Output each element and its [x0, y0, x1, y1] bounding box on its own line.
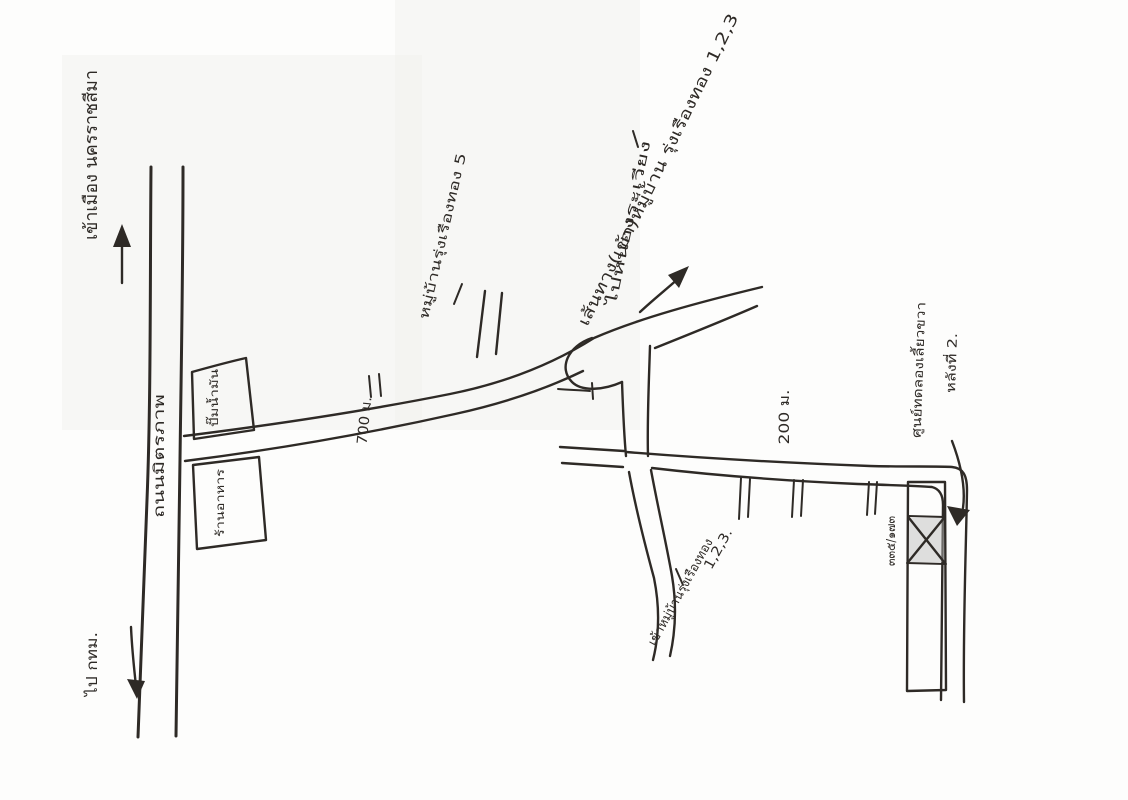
- label-house-number: ๓๓๕/๑๗๓: [883, 516, 898, 566]
- label-distance-200m: 200 ม.: [777, 390, 793, 445]
- label-to-bangkok: ไป กทม.: [83, 632, 101, 697]
- road-200m-south-edge: [652, 468, 943, 700]
- label-building-south: ร้านอาหาร: [213, 469, 227, 537]
- label-destination-line2: หลังที่ 2.: [942, 333, 961, 394]
- label-to-city: เข้าเมือง นครราชสีมา: [81, 70, 102, 240]
- destination-block: [907, 482, 946, 691]
- label-destination-line1: ศูนย์ทดลองเลี้ยวขวา: [907, 302, 930, 439]
- connector-east-edge: [648, 346, 650, 456]
- arrow-to-bangkok-shaft: [131, 627, 136, 686]
- driveway-stub: [739, 478, 741, 519]
- road-200m-west-stub-south: [562, 463, 623, 467]
- label-main-road: ถนนมิตรภาพ: [152, 394, 168, 518]
- label-building-north: ปั๊มน้ำมัน: [205, 369, 221, 427]
- destination-block-divider: [907, 563, 946, 564]
- driveway-stub: [748, 479, 750, 517]
- arrow-to-destination-shaft: [952, 441, 964, 508]
- scan-shadow: [395, 0, 640, 430]
- driveway-stub: [801, 480, 803, 516]
- arrow-to-bangkok-head: [127, 679, 145, 699]
- driveway-stub: [875, 482, 877, 514]
- driveway-stub: [792, 480, 794, 517]
- road-200m-north-edge: [626, 452, 967, 702]
- dead-end-bar: [592, 383, 593, 399]
- road-200m-west-stub-north: [560, 447, 624, 451]
- driveway-stub: [867, 482, 869, 515]
- arrow-northeast-shaft: [640, 277, 680, 312]
- building-south-outline: [193, 457, 266, 549]
- hand-drawn-route-map: เข้าเมือง นครราชสีมา ถนนมิตรภาพ ไป กทม. …: [0, 0, 1128, 800]
- map-canvas: เข้าเมือง นครราชสีมา ถนนมิตรภาพ ไป กทม. …: [0, 0, 1128, 800]
- destination-block-divider: [908, 516, 945, 517]
- destination-block-outline: [907, 482, 946, 691]
